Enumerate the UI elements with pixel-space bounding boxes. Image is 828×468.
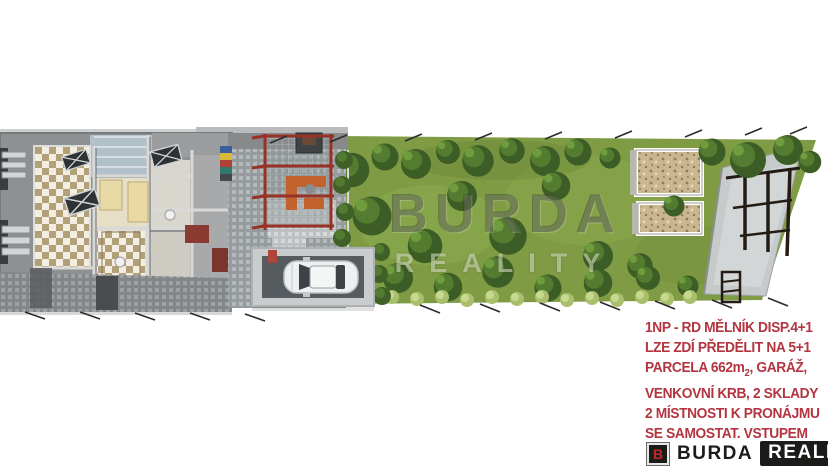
garage-text: , GARÁŽ, [749, 360, 806, 376]
pergola-outdoor-fireplace [252, 133, 334, 230]
car-top-view [284, 257, 358, 297]
listing-note-line-1: 1NP - RD MĚLNÍK DISP.4+1 [645, 318, 821, 338]
burda-monogram-icon: B [646, 442, 670, 466]
listing-description: 1NP - RD MĚLNÍK DISP.4+1 LZE ZDÍ PŘEDĚLI… [645, 318, 828, 444]
listing-note-line-5: 2 MÍSTNOSTI K PRONÁJMU [645, 404, 821, 424]
agency-logo-suffix: REALITY [760, 441, 828, 466]
storage-sheds [630, 150, 702, 234]
listing-note-line-2: LZE ZDÍ PŘEDĚLIT NA 5+1 [645, 338, 821, 358]
listing-note-line-3: PARCELA 662m2, GARÁŽ, [645, 358, 821, 384]
listing-note-line-4: VENKOVNÍ KRB, 2 SKLADY [645, 384, 821, 404]
parcel-size-text: PARCELA 662m [645, 360, 745, 376]
listing-visual: BURDA REALITY 1NP - RD MĚLNÍK DISP.4+1 L… [0, 0, 828, 468]
agency-logo-name: BURDA [677, 443, 753, 465]
garage-with-car [252, 248, 374, 311]
agency-logo: B BURDA REALITY [646, 441, 828, 466]
